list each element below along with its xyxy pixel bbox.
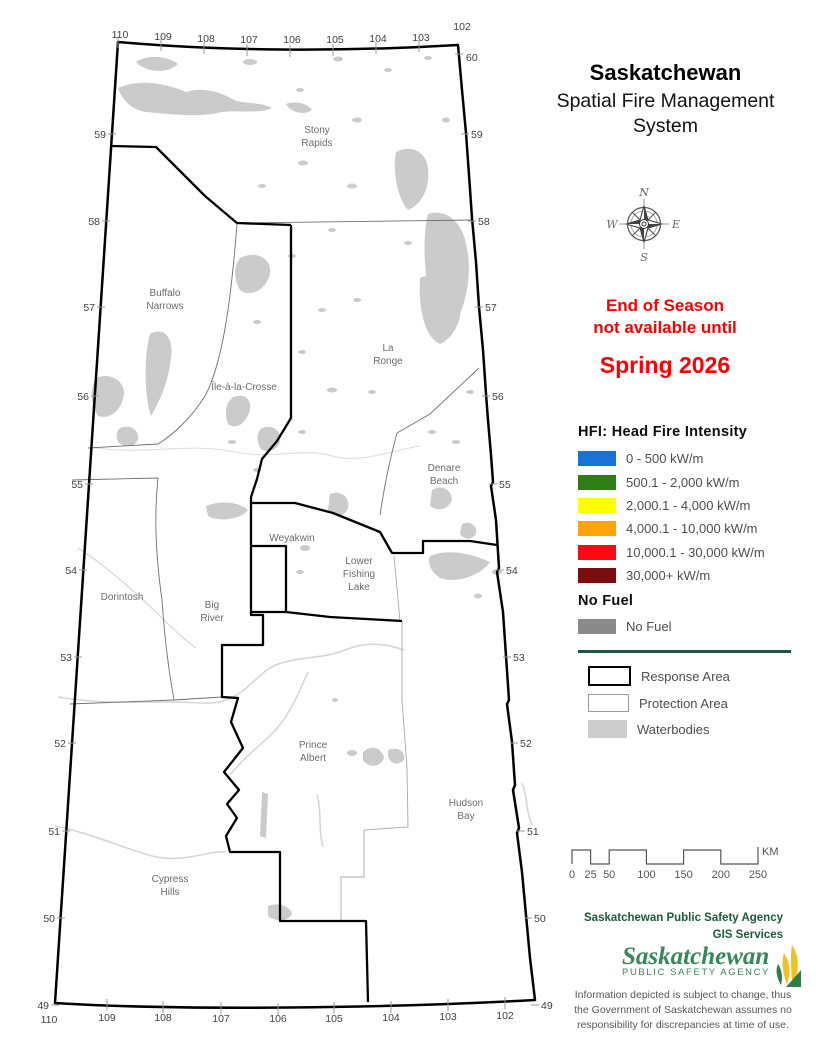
map-place-label: Beach [430, 476, 458, 487]
hfi-label: 4,000.1 - 10,000 kW/m [626, 521, 758, 536]
longitude-label: 106 [283, 34, 301, 46]
longitude-label: 107 [212, 1013, 230, 1025]
scale-tick-labels: 02550100150200250 [569, 869, 767, 881]
agency-logo-text: Saskatchewan PUBLIC SAFETY AGENCY [622, 944, 770, 978]
hfi-label: 500.1 - 2,000 kW/m [626, 475, 739, 490]
saskatchewan-map: 5958575655545352515049605958575655545352… [0, 0, 570, 1056]
scale-tick-label: 25 [584, 869, 596, 881]
latitude-label: 57 [485, 302, 497, 314]
latitude-label: 49 [37, 1000, 49, 1012]
scale-bar: KM 02550100150200250 [563, 842, 791, 887]
latitude-label: 55 [499, 479, 511, 491]
no-fuel-swatch [578, 619, 616, 634]
longitude-label: 109 [98, 1012, 116, 1024]
notice-line1: End of Season [540, 295, 790, 317]
map-place-label: River [200, 613, 224, 624]
map-place-label: Dorintosh [101, 592, 144, 603]
latitude-label: 54 [65, 565, 77, 577]
waterbodies-label: Waterbodies [637, 722, 710, 737]
longitude-label: 106 [269, 1013, 287, 1025]
latitude-label: 59 [94, 129, 106, 141]
disclaimer-line3: responsibility for discrepancies at time… [572, 1018, 794, 1033]
longitude-label: 102 [496, 1010, 514, 1022]
map-page: 5958575655545352515049605958575655545352… [0, 0, 816, 1056]
hfi-swatch-red [578, 545, 616, 560]
hfi-swatch-orange [578, 521, 616, 536]
map-place-label: Rapids [301, 138, 332, 149]
map-labels: 5958575655545352515049605958575655545352… [37, 21, 553, 1026]
latitude-label: 52 [520, 738, 532, 750]
hfi-label: 2,000.1 - 4,000 kW/m [626, 498, 750, 513]
longitude-label: 102 [453, 21, 471, 33]
map-place-label: Hills [161, 887, 180, 898]
longitude-label: 104 [369, 33, 387, 45]
area-legend-item: Waterbodies [588, 720, 730, 738]
longitude-label: 110 [112, 29, 129, 41]
latitude-label: 56 [77, 391, 89, 403]
disclaimer: Information depicted is subject to chang… [572, 988, 794, 1033]
compass-e: E [671, 218, 680, 231]
latitude-label: 49 [541, 1000, 553, 1012]
map-place-label: La [382, 343, 394, 354]
response-area-label: Response Area [641, 669, 730, 684]
map-place-label: Fishing [343, 569, 375, 580]
latitude-label: 59 [471, 129, 483, 141]
map-place-label: Lake [348, 582, 370, 593]
title-line3: System [538, 114, 793, 139]
scale-tick-label: 0 [569, 869, 575, 881]
notice-line2: not available until [540, 317, 790, 339]
protection-boundaries [70, 220, 479, 921]
map-place-label: Île-à-la-Crosse [210, 380, 277, 393]
map-place-label: Weyakwin [269, 533, 314, 544]
hfi-legend: HFI: Head Fire Intensity 0 - 500 kW/m 50… [578, 424, 765, 638]
map-place-label: Lower [345, 556, 373, 567]
no-fuel-label: No Fuel [626, 619, 672, 634]
compass-s: S [640, 251, 648, 264]
map-place-label: Ronge [373, 356, 403, 367]
no-fuel-item: No Fuel [578, 614, 765, 637]
hfi-legend-item: 30,000+ kW/m [578, 564, 765, 587]
title-line1: Saskatchewan [538, 60, 793, 86]
longitude-label: 105 [325, 1013, 343, 1025]
hfi-swatch-darkred [578, 568, 616, 583]
map-place-label: Bay [457, 811, 474, 822]
map-place-label: Stony [304, 125, 330, 136]
season-notice: End of Season not available until Spring… [540, 295, 790, 379]
protection-area-swatch [588, 694, 629, 712]
credits: Saskatchewan Public Safety Agency GIS Se… [540, 910, 783, 944]
latitude-label: 51 [527, 826, 539, 838]
protection-area-label: Protection Area [639, 696, 728, 711]
longitude-label: 103 [412, 32, 430, 44]
latitude-label: 52 [54, 738, 66, 750]
disclaimer-line1: Information depicted is subject to chang… [572, 988, 794, 1003]
scale-tick-label: 50 [603, 869, 615, 881]
scale-tick-label: 150 [674, 869, 692, 881]
hfi-legend-item: 2,000.1 - 4,000 kW/m [578, 494, 765, 517]
latitude-label: 57 [83, 302, 95, 314]
hfi-swatch-yellow [578, 498, 616, 513]
map-place-label: Prince [299, 740, 328, 751]
hfi-legend-item: 500.1 - 2,000 kW/m [578, 470, 765, 493]
waterbodies-swatch [588, 720, 627, 738]
longitude-label: 110 [41, 1014, 58, 1026]
area-legend-item: Protection Area [588, 694, 730, 712]
map-place-label: Hudson [449, 798, 483, 809]
scale-tick-label: 250 [749, 869, 767, 881]
latitude-label: 55 [71, 479, 83, 491]
map-place-label: Buffalo [150, 288, 181, 299]
latitude-label: 51 [48, 826, 60, 838]
hfi-legend-header: HFI: Head Fire Intensity [578, 424, 765, 440]
latitude-label: 50 [43, 913, 55, 925]
no-fuel-header: No Fuel [578, 593, 765, 609]
hfi-label: 10,000.1 - 30,000 kW/m [626, 545, 765, 560]
response-area-swatch [588, 666, 631, 686]
waterbodies-layer [92, 56, 502, 920]
latitude-label: 58 [478, 216, 490, 228]
credits-dept-line: GIS Services [540, 927, 783, 944]
credits-org-line: Saskatchewan Public Safety Agency [540, 910, 783, 927]
legend-divider [578, 650, 791, 653]
logo-subtitle: PUBLIC SAFETY AGENCY [622, 967, 770, 978]
disclaimer-line2: the Government of Saskatchewan assumes n… [572, 1003, 794, 1018]
map-place-label: Albert [300, 753, 326, 764]
area-legend: Response Area Protection Area Waterbodie… [588, 666, 730, 746]
longitude-label: 103 [439, 1011, 457, 1023]
longitude-label: 107 [240, 34, 258, 46]
wheat-sheaf-icon [772, 944, 802, 988]
longitude-label: 108 [197, 33, 215, 45]
compass-rose-icon: N E S W [604, 184, 684, 264]
hfi-legend-item: 4,000.1 - 10,000 kW/m [578, 517, 765, 540]
scale-tick-label: 200 [712, 869, 730, 881]
scale-tick-label: 100 [637, 869, 655, 881]
map-place-label: Denare [428, 463, 461, 474]
latitude-label: 56 [492, 391, 504, 403]
latitude-label: 60 [466, 52, 478, 64]
longitude-label: 108 [154, 1012, 172, 1024]
area-legend-item: Response Area [588, 666, 730, 686]
map-title: Saskatchewan Spatial Fire Management Sys… [538, 60, 793, 139]
hfi-legend-item: 10,000.1 - 30,000 kW/m [578, 541, 765, 564]
hfi-legend-item: 0 - 500 kW/m [578, 447, 765, 470]
longitude-label: 105 [326, 34, 344, 46]
hfi-swatch-green [578, 475, 616, 490]
latitude-label: 54 [506, 565, 518, 577]
scale-unit: KM [762, 846, 779, 858]
map-place-label: Narrows [146, 301, 183, 312]
longitude-label: 104 [382, 1012, 400, 1024]
notice-line3: Spring 2026 [540, 352, 790, 379]
latitude-label: 53 [60, 652, 72, 664]
compass-n: N [638, 186, 649, 199]
hfi-label: 30,000+ kW/m [626, 568, 710, 583]
compass-w: W [606, 218, 619, 231]
agency-logo: Saskatchewan PUBLIC SAFETY AGENCY [560, 944, 802, 988]
hfi-swatch-blue [578, 451, 616, 466]
title-line2: Spatial Fire Management [538, 89, 793, 114]
hfi-label: 0 - 500 kW/m [626, 451, 703, 466]
map-place-label: Big [205, 600, 219, 611]
map-place-label: Cypress [152, 874, 189, 885]
latitude-label: 53 [513, 652, 525, 664]
latitude-label: 58 [88, 216, 100, 228]
longitude-label: 109 [154, 31, 172, 43]
rivers-layer [55, 446, 532, 858]
